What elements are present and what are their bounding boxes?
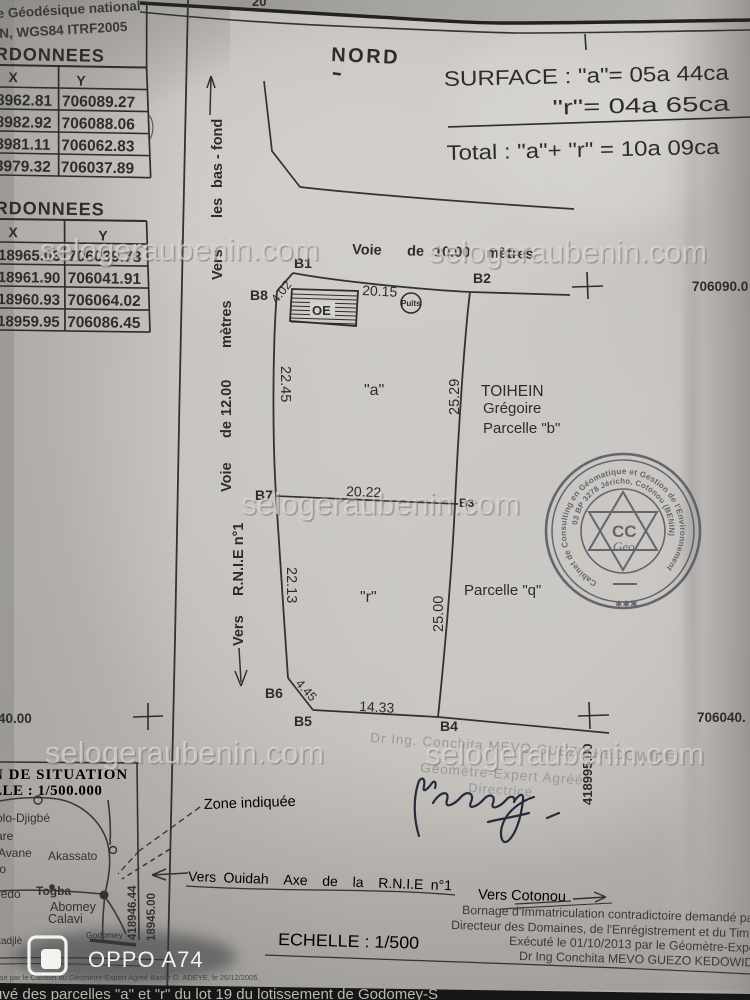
svg-text:B5: B5 <box>294 713 312 729</box>
svg-text:selogeraubenin.com: selogeraubenin.com <box>425 736 704 771</box>
svg-text:40.00: 40.00 <box>0 711 32 726</box>
svg-text:706086.45: 706086.45 <box>67 314 141 332</box>
svg-text:"a": "a" <box>364 382 384 399</box>
svg-text:8981.11: 8981.11 <box>0 136 51 154</box>
svg-text:selogeraubenin.com: selogeraubenin.com <box>40 232 319 267</box>
svg-text:20.15: 20.15 <box>362 282 398 300</box>
svg-text:706064.02: 706064.02 <box>67 292 141 310</box>
svg-text:OE: OE <box>312 303 331 318</box>
svg-text:706062.83: 706062.83 <box>61 137 135 155</box>
svg-text:B6: B6 <box>265 685 283 701</box>
svg-text:8982.92: 8982.92 <box>0 114 52 132</box>
svg-text:706088.06: 706088.06 <box>61 115 135 133</box>
svg-text:OPPO A74: OPPO A74 <box>88 947 204 972</box>
svg-text:706037.89: 706037.89 <box>61 159 135 177</box>
svg-text:"r": "r" <box>360 589 377 606</box>
svg-text:22.45: 22.45 <box>277 366 293 402</box>
svg-text:ECHELLE : 1/500: ECHELLE : 1/500 <box>278 930 419 953</box>
svg-text:706041.91: 706041.91 <box>68 270 142 288</box>
svg-text:"r"= 04a 65ca: "r"= 04a 65ca <box>552 93 730 120</box>
svg-text:olo-Djigbé: olo-Djigbé <box>0 811 50 825</box>
svg-text:706089.27: 706089.27 <box>62 93 136 111</box>
svg-text:to: to <box>0 862 6 876</box>
svg-text:Akassato: Akassato <box>48 849 98 863</box>
svg-text:25.29: 25.29 <box>447 379 463 415</box>
svg-text:B2: B2 <box>473 270 491 286</box>
svg-text:22.13: 22.13 <box>283 567 299 603</box>
svg-text:selogeraubenin.com: selogeraubenin.com <box>241 486 520 521</box>
svg-text:uvé des parcelles "a" et "r" d: uvé des parcelles "a" et "r" du lot 19 d… <box>0 986 438 1000</box>
svg-text:Geo: Geo <box>613 539 635 554</box>
svg-text:Grégoire: Grégoire <box>483 400 541 417</box>
svg-text:Puits: Puits <box>401 299 421 308</box>
svg-text:✱✱✱: ✱✱✱ <box>615 599 638 609</box>
svg-text:NORD: NORD <box>331 44 401 69</box>
svg-text:18960.93: 18960.93 <box>0 291 60 309</box>
svg-text:VersR.N.I.E n°1: VersR.N.I.E n°1 <box>231 523 247 646</box>
svg-text:25.00: 25.00 <box>431 596 447 632</box>
svg-text:8979.32: 8979.32 <box>0 158 51 176</box>
svg-text:RDONNEES: RDONNEES <box>0 198 105 220</box>
svg-text:Calavi: Calavi <box>48 912 83 926</box>
svg-text:RDONNEES: RDONNEES <box>0 44 105 66</box>
svg-text:-Avane: -Avane <box>0 846 32 860</box>
svg-text:Togba: Togba <box>36 884 71 898</box>
svg-text:TOIHEIN: TOIHEIN <box>481 383 544 400</box>
svg-text:Voiede12.00mètres: Voiede12.00mètres <box>219 300 235 492</box>
svg-text:LLE : 1/500.000: LLE : 1/500.000 <box>0 783 102 799</box>
svg-text:selogeraubenin.com: selogeraubenin.com <box>428 234 707 269</box>
svg-text:kadjlè: kadjlè <box>0 936 23 947</box>
svg-text:14.33: 14.33 <box>359 698 395 716</box>
svg-text:8962.81: 8962.81 <box>0 92 53 110</box>
svg-text:B8: B8 <box>250 287 268 303</box>
svg-text:706040.: 706040. <box>697 710 746 725</box>
svg-text:18961.90: 18961.90 <box>0 269 60 287</box>
svg-text:are: are <box>0 829 14 843</box>
svg-text:18959.95: 18959.95 <box>0 313 60 331</box>
svg-text:20: 20 <box>252 0 266 9</box>
svg-text:selogeraubenin.com: selogeraubenin.com <box>45 735 324 770</box>
svg-text:706090.0: 706090.0 <box>692 279 748 294</box>
svg-text:X: X <box>8 224 18 240</box>
svg-text:Y: Y <box>76 72 86 88</box>
svg-text:Zone indiquée: Zone indiquée <box>204 794 296 813</box>
svg-text:X: X <box>8 69 18 85</box>
svg-text:Parcelle "b": Parcelle "b" <box>483 420 560 437</box>
svg-text:B4: B4 <box>440 718 458 734</box>
svg-text:Parcelle "q": Parcelle "q" <box>464 582 541 599</box>
svg-text:uedo: uedo <box>0 887 21 901</box>
